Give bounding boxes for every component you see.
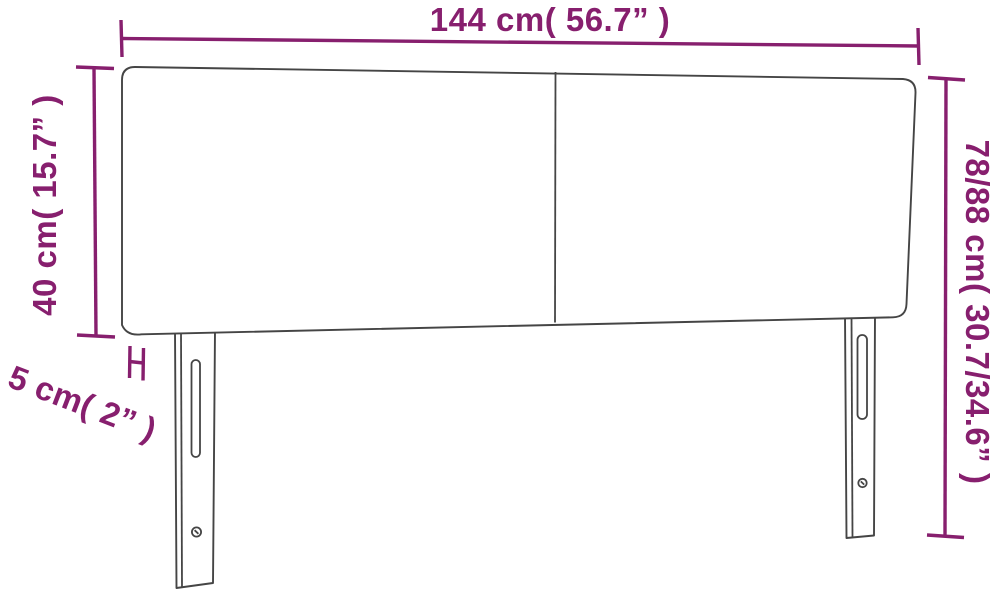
total-height-dimension-line bbox=[945, 79, 946, 536]
right-leg-outline bbox=[845, 314, 875, 538]
depth-dimension: 5 cm( 2” ) bbox=[3, 346, 161, 448]
total-height-bottom-tick bbox=[927, 535, 964, 538]
total-height-dimension-label: 78/88 cm( 30.7/34.6” ) bbox=[959, 140, 995, 485]
right-leg-edge-line bbox=[852, 315, 853, 537]
panel-height-bottom-tick bbox=[77, 335, 115, 337]
width-dimension-line bbox=[122, 39, 918, 47]
total-height-top-tick bbox=[928, 78, 965, 81]
width-dimension-label: 144 cm( 56.7” ) bbox=[430, 1, 670, 38]
panel-height-top-tick bbox=[76, 67, 114, 69]
panel-seam bbox=[555, 72, 556, 323]
total-height-dimension: 78/88 cm( 30.7/34.6” ) bbox=[927, 78, 995, 538]
width-dimension: 144 cm( 56.7” ) bbox=[121, 1, 919, 65]
right-leg bbox=[845, 314, 875, 538]
depth-dimension-label: 5 cm( 2” ) bbox=[3, 358, 161, 448]
width-dimension-left-tick bbox=[121, 20, 122, 57]
headboard-dimension-diagram: 144 cm( 56.7” ) 40 cm( 15.7” ) 78/88 cm(… bbox=[0, 0, 995, 596]
depth-bracket-right-tick bbox=[143, 348, 144, 381]
panel-height-dimension-label: 40 cm( 15.7” ) bbox=[26, 94, 63, 316]
diagram-canvas: 144 cm( 56.7” ) 40 cm( 15.7” ) 78/88 cm(… bbox=[0, 0, 995, 596]
panel-height-dimension: 40 cm( 15.7” ) bbox=[26, 67, 115, 337]
width-dimension-right-tick bbox=[918, 28, 919, 65]
left-leg-edge-line bbox=[181, 331, 182, 587]
left-leg bbox=[175, 330, 215, 588]
headboard-panel bbox=[122, 67, 916, 335]
panel-height-dimension-line bbox=[94, 68, 96, 336]
depth-bracket-line bbox=[130, 362, 144, 364]
headboard-drawing bbox=[122, 67, 916, 588]
